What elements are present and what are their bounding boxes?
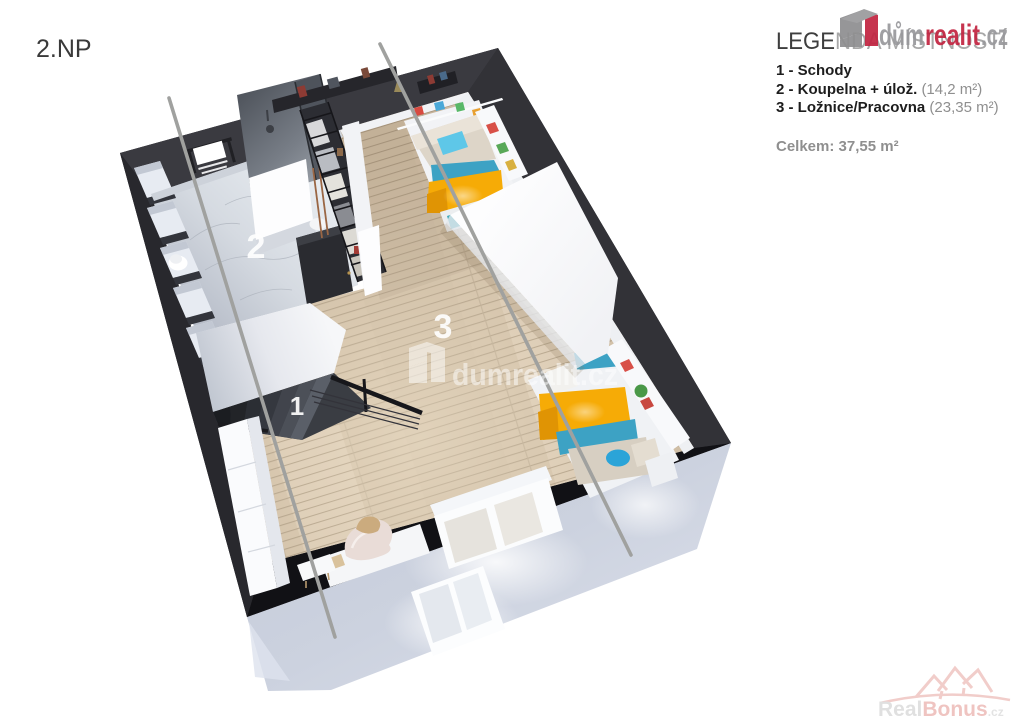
svg-text:dům: dům: [879, 19, 924, 52]
svg-text:3: 3: [434, 308, 453, 346]
svg-text:realit: realit: [925, 19, 980, 52]
svg-text:2 - Koupelna + úlož. (14,2 m²): 2 - Koupelna + úlož. (14,2 m²): [776, 81, 982, 98]
svg-text:3 - Ložnice/Pracovna (23,35 m²: 3 - Ložnice/Pracovna (23,35 m²): [776, 99, 999, 116]
svg-text:2: 2: [247, 228, 266, 266]
svg-text:RealBonus.cz: RealBonus.cz: [878, 698, 1004, 721]
svg-text:1 - Schody: 1 - Schody: [776, 62, 853, 79]
svg-text:dumrealit.cz: dumrealit.cz: [452, 357, 618, 392]
svg-text:2.NP: 2.NP: [36, 35, 92, 63]
svg-text:Celkem: 37,55 m²: Celkem: 37,55 m²: [776, 138, 899, 155]
svg-text:.cz: .cz: [981, 19, 1008, 52]
svg-text:1: 1: [290, 391, 304, 421]
